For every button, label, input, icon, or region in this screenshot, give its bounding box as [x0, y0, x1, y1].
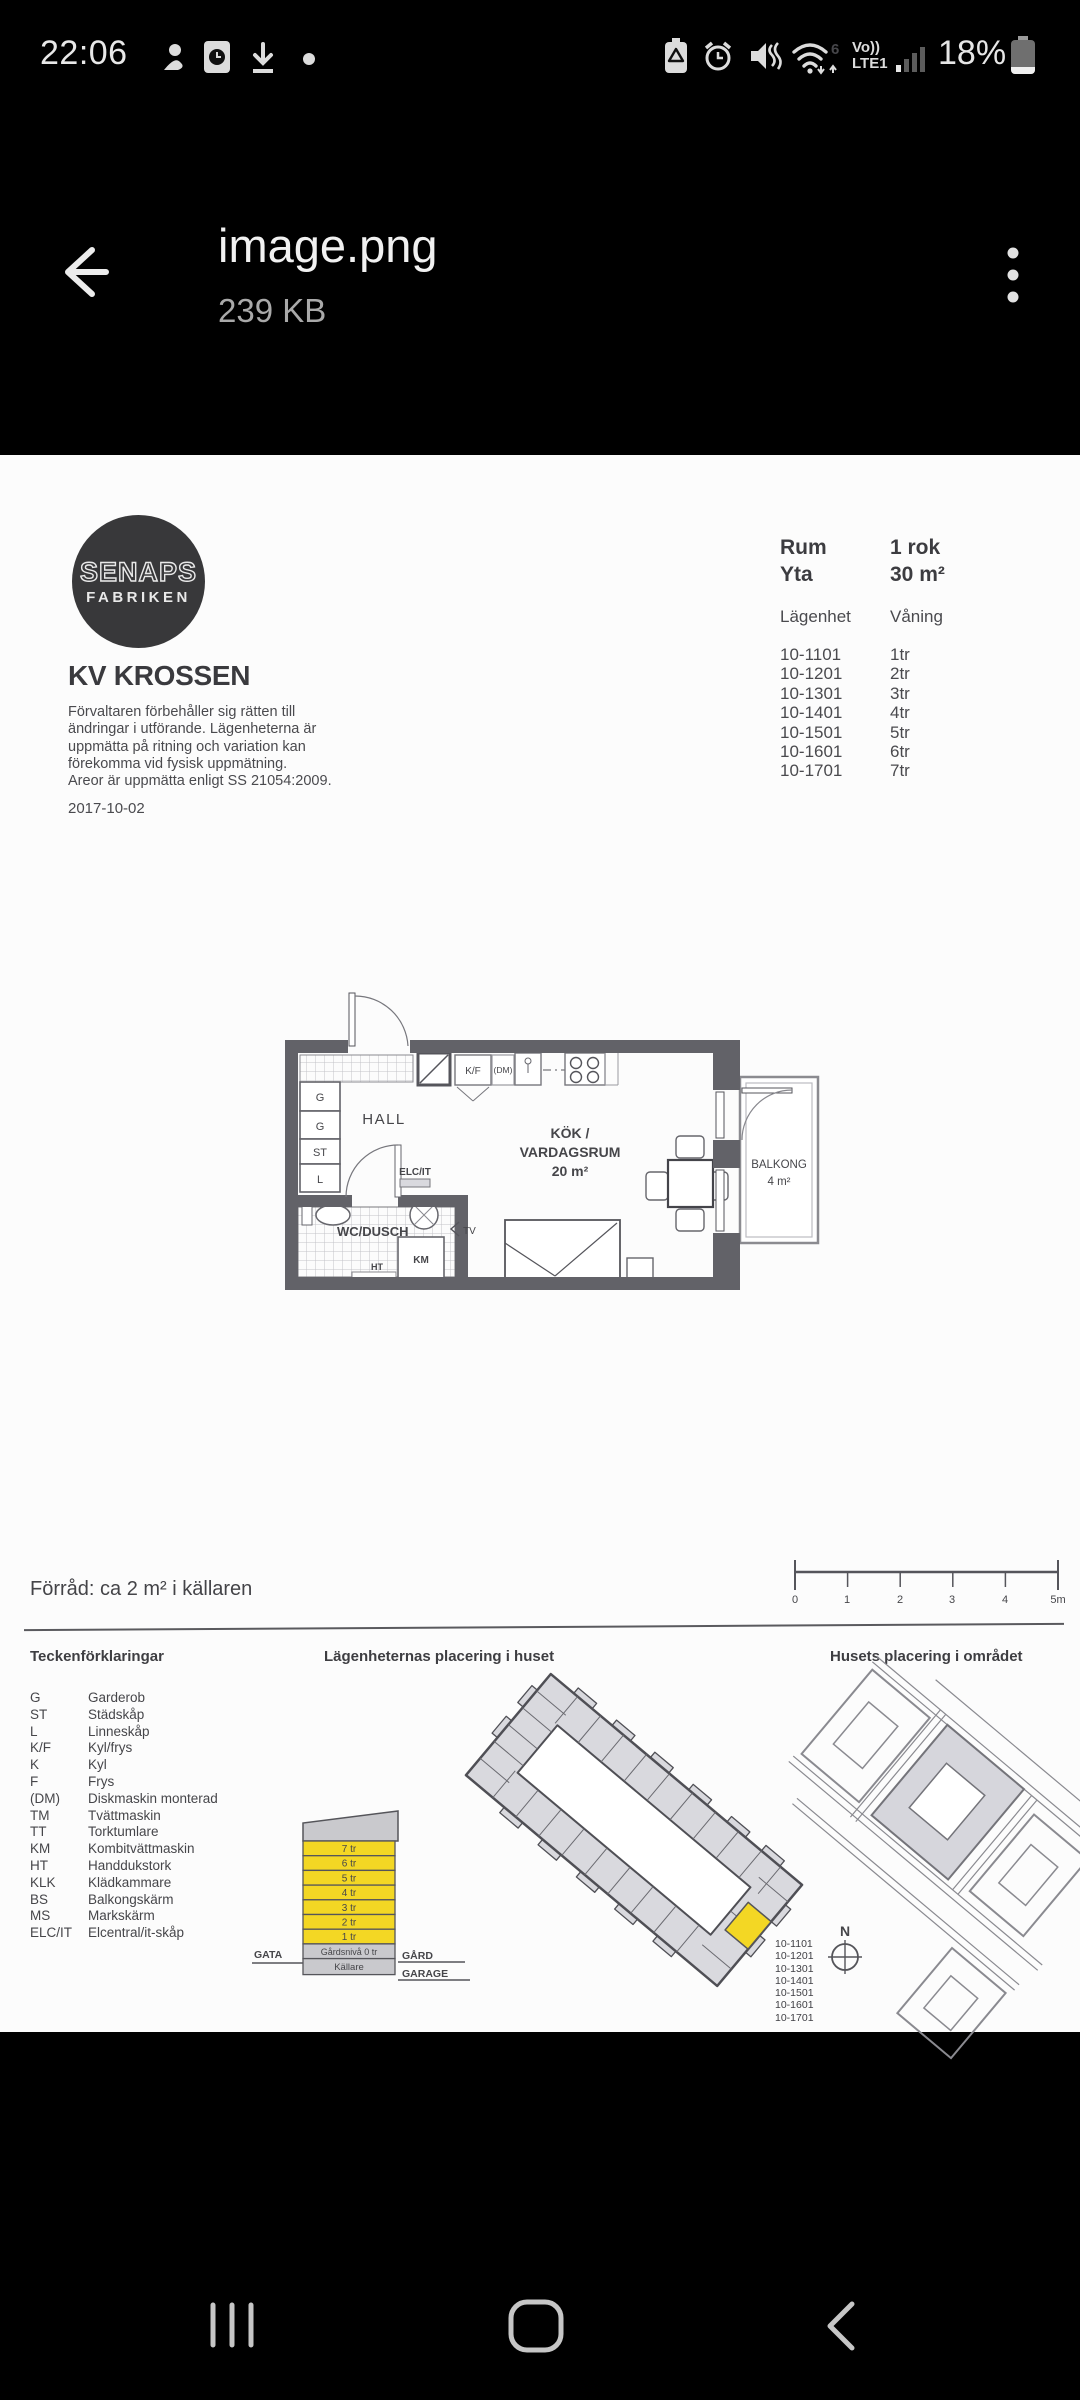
apartment-table: 10-11011tr 10-12012tr 10-13013tr 10-1401… — [780, 645, 910, 781]
legend-item: LLinneskåp — [30, 1724, 218, 1741]
svg-text:2: 2 — [897, 1594, 903, 1606]
battery-saver-icon — [663, 38, 689, 74]
rum-value: 1 rok — [890, 536, 940, 560]
kitchen-label-line1: KÖK / — [551, 1125, 590, 1141]
legend-item: STStädskåp — [30, 1707, 218, 1724]
table-row: 10-15015tr — [780, 723, 910, 742]
notification-dot-icon — [302, 52, 316, 66]
legend-item: KLKKlädkammare — [30, 1875, 218, 1892]
rum-label: Rum — [780, 536, 827, 560]
logo-text-bottom: FABRIKEN — [86, 589, 191, 606]
svg-text:2 tr: 2 tr — [342, 1918, 357, 1929]
floor-col-header: Våning — [890, 607, 943, 627]
kitchen-label-line2: VARDAGSRUM — [520, 1144, 621, 1160]
battery-icon — [1008, 36, 1038, 76]
site-plan: N — [800, 1665, 1080, 2025]
legend-item: K/FKyl/frys — [30, 1740, 218, 1757]
legend-item: TMTvättmaskin — [30, 1808, 218, 1825]
volte-label: Vo)) LTE1 — [852, 40, 888, 72]
legend-item: BSBalkongskärm — [30, 1892, 218, 1909]
table-row: 10-14014tr — [780, 703, 910, 722]
back-arrow-icon[interactable] — [58, 246, 114, 298]
clock-app-icon — [202, 40, 232, 74]
street-label: GATA — [254, 1949, 283, 1961]
wifi-standard-label: 6 — [831, 41, 839, 58]
scale-bar: 0 1 2 3 4 5m — [785, 1555, 1075, 1610]
yard-label: GÅRD — [402, 1949, 433, 1962]
legend-item: KMKombitvättmaskin — [30, 1841, 218, 1858]
table-row: 10-17017tr — [780, 761, 910, 780]
kitchen-area-label: 20 m² — [552, 1163, 589, 1179]
profile-icon — [158, 40, 192, 74]
navigation-bar — [0, 2260, 1080, 2400]
elcit-label: ELC/IT — [399, 1167, 431, 1178]
legend-item: FFrys — [30, 1774, 218, 1791]
legend-item: MSMarkskärm — [30, 1908, 218, 1925]
svg-text:3 tr: 3 tr — [342, 1903, 357, 1914]
svg-text:1 tr: 1 tr — [342, 1932, 357, 1943]
document-date: 2017-10-02 — [68, 800, 145, 817]
closet-g2-label: G — [316, 1121, 325, 1133]
alarm-icon — [702, 40, 734, 72]
clock-text: 22:06 — [40, 34, 128, 73]
battery-percent-label: 18% — [938, 34, 1006, 73]
svg-text:1: 1 — [844, 1594, 850, 1606]
svg-text:7 tr: 7 tr — [342, 1844, 357, 1855]
legend-item: GGarderob — [30, 1690, 218, 1707]
disclaimer-text: Förvaltaren förbehåller sig rätten till … — [68, 704, 332, 790]
legend-item: (DM)Diskmaskin monterad — [30, 1791, 218, 1808]
app-header: image.png 239 KB — [0, 100, 1080, 260]
building-plan — [440, 1670, 820, 2020]
closet-l-label: L — [317, 1174, 323, 1186]
closet-g1-label: G — [316, 1092, 325, 1104]
table-row: 10-13013tr — [780, 684, 910, 703]
file-title: image.png — [218, 218, 438, 273]
ht-label: HT — [371, 1262, 383, 1272]
download-icon — [248, 42, 278, 74]
km-label: KM — [413, 1255, 429, 1266]
legend-title: Teckenförklaringar — [30, 1648, 164, 1665]
svg-text:4: 4 — [1002, 1594, 1008, 1606]
table-row: 10-11011tr — [780, 645, 910, 664]
table-row: 10-12012tr — [780, 664, 910, 683]
balcony-label: BALKONG — [751, 1159, 807, 1171]
tv-label: TV — [463, 1226, 476, 1237]
logo-text-top: SENAPS — [80, 557, 197, 588]
compass-north-label: N — [840, 1923, 850, 1939]
hall-label: HALL — [362, 1111, 406, 1128]
svg-text:6 tr: 6 tr — [342, 1859, 357, 1870]
svg-text:5m: 5m — [1050, 1594, 1065, 1606]
legend-item: HTHanddukstork — [30, 1858, 218, 1875]
recents-icon[interactable] — [208, 2302, 256, 2348]
svg-text:5 tr: 5 tr — [342, 1873, 357, 1884]
yta-value: 30 m² — [890, 563, 945, 587]
yta-label: Yta — [780, 563, 813, 587]
placement-title: Lägenheternas placering i huset — [324, 1648, 554, 1665]
closet-st-label: ST — [313, 1147, 327, 1159]
senapsfabriken-logo: SENAPS FABRIKEN — [72, 515, 205, 648]
mobile-signal-icon — [896, 46, 928, 74]
dishwasher-label: (DM) — [494, 1065, 513, 1075]
home-icon[interactable] — [507, 2298, 565, 2354]
file-size: 239 KB — [218, 292, 326, 330]
legend-item: KKyl — [30, 1757, 218, 1774]
table-row: 10-16016tr — [780, 742, 910, 761]
kebab-menu-icon[interactable] — [1000, 242, 1026, 308]
ground-level-label: Gårdsnivå 0 tr — [321, 1947, 378, 1957]
project-title: KV KROSSEN — [68, 660, 250, 692]
apartment-col-header: Lägenhet — [780, 607, 851, 627]
compass-icon: N — [828, 1923, 862, 1974]
floor-plan: BALKONG 4 m² G G ST L HALL WC/DUSCH KM H… — [278, 985, 838, 1295]
balcony-area-label: 4 m² — [768, 1176, 791, 1188]
legend-item: TTTorktumlare — [30, 1824, 218, 1841]
svg-text:3: 3 — [949, 1594, 955, 1606]
basement-label: Källare — [334, 1962, 364, 1973]
wifi-6-icon: 6 — [790, 38, 842, 76]
fridge-label: K/F — [465, 1066, 481, 1077]
legend-item: ELC/ITElcentral/it-skåp — [30, 1925, 218, 1942]
svg-text:0: 0 — [792, 1594, 798, 1606]
legend-list: GGarderob STStädskåp LLinneskåp K/FKyl/f… — [30, 1690, 218, 1942]
storage-note: Förråd: ca 2 m² i källaren — [30, 1578, 252, 1601]
back-icon[interactable] — [820, 2300, 860, 2352]
apartment-number-list: 10-1101 10-1201 10-1301 10-1401 10-1501 … — [775, 1938, 814, 2024]
site-title: Husets placering i området — [830, 1648, 1023, 1665]
svg-text:4 tr: 4 tr — [342, 1888, 357, 1899]
mute-icon — [748, 40, 782, 72]
status-bar: 22:06 6 Vo)) LTE1 — [0, 0, 1080, 78]
